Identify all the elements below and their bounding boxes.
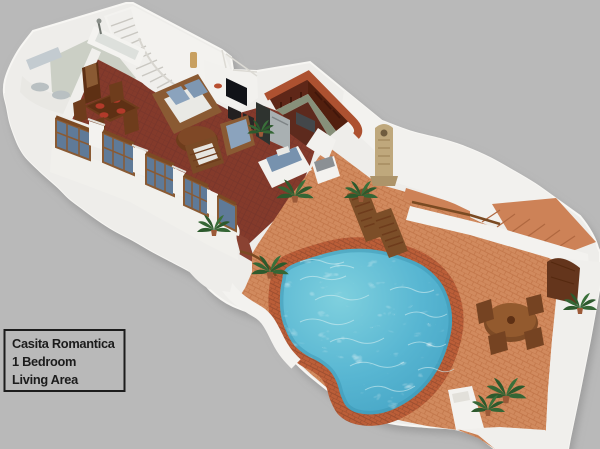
svg-text:Living Area: Living Area [12, 372, 79, 387]
svg-text:Casita Romantica: Casita Romantica [12, 336, 116, 351]
svg-text:1 Bedroom: 1 Bedroom [12, 354, 76, 369]
